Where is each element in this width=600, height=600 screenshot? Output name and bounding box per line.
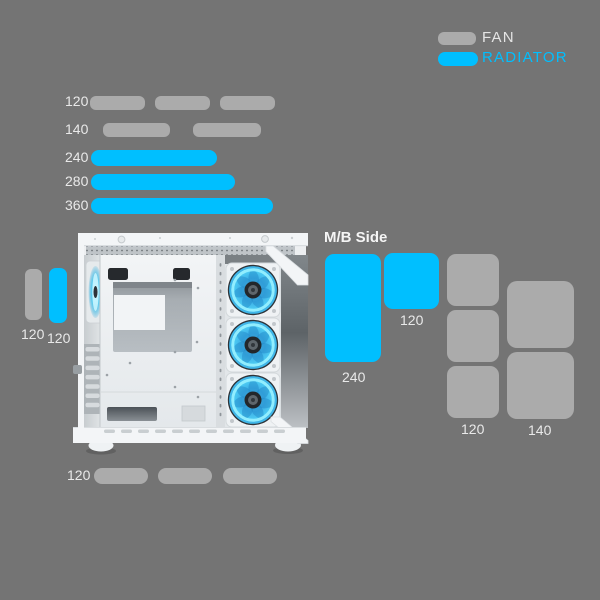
- mb-side-radiator-120-label: 120: [400, 313, 423, 328]
- top-row-280-label: 280: [65, 174, 88, 189]
- top-fan-120-segment-3: [220, 96, 275, 110]
- rear-fan-120-label: 120: [21, 327, 44, 342]
- front-fan-1: [226, 263, 280, 317]
- rear-fan-120-bar: [25, 269, 42, 320]
- top-row-140-label: 140: [65, 122, 88, 137]
- top-row-120-label: 120: [65, 94, 88, 109]
- right-fan-120-segment-2: [447, 310, 499, 362]
- legend-radiator-swatch: [438, 52, 478, 66]
- cable-grommet: [108, 268, 128, 280]
- right-fan-140-segment-2: [507, 352, 574, 419]
- right-fan-140-segment-1: [507, 281, 574, 348]
- bottom-fan-120-segment-1: [94, 468, 148, 484]
- top-radiator-360-bar: [91, 198, 273, 214]
- top-row-240-label: 240: [65, 150, 88, 165]
- psu-box: [182, 406, 205, 421]
- motherboard-tray: [100, 255, 216, 428]
- bottom-fan-120-segment-2: [158, 468, 212, 484]
- bottom-frame: [73, 427, 306, 443]
- fan-radiator-compatibility-diagram: FAN RADIATOR 120 140 240 280 360 120 120…: [0, 0, 600, 600]
- mb-side-title: M/B Side: [324, 230, 387, 246]
- top-vent-strip: [86, 246, 295, 255]
- top-fan-120-segment-1: [90, 96, 145, 110]
- rear-radiator-120-label: 120: [47, 331, 70, 346]
- power-button-stub: [73, 365, 82, 374]
- pci-slot-covers: [84, 344, 101, 414]
- top-row-360-label: 360: [65, 198, 88, 213]
- top-fan-140-segment-2: [193, 123, 261, 137]
- top-radiator-240-bar: [91, 150, 217, 166]
- cable-grommet: [173, 268, 190, 280]
- cpu-cutout: [113, 282, 192, 352]
- psu-opening: [107, 407, 157, 421]
- bottom-fan-120-label: 120: [67, 468, 90, 483]
- rear-outer-edge: [78, 233, 84, 443]
- legend-radiator-label: RADIATOR: [482, 50, 568, 66]
- cable-bar: [216, 255, 225, 428]
- bottom-fan-120-segment-3: [223, 468, 277, 484]
- right-fan-120-segment-3: [447, 366, 499, 418]
- top-fan-140-segment-1: [103, 123, 170, 137]
- right-fan-120-label: 120: [461, 422, 484, 437]
- top-radiator-280-bar: [91, 174, 235, 190]
- mb-side-radiator-120-bar: [384, 253, 439, 309]
- rear-radiator-120-bar: [49, 268, 67, 323]
- mb-side-radiator-240-bar: [325, 254, 381, 362]
- legend-fan-label: FAN: [482, 30, 515, 46]
- right-fan-140-label: 140: [528, 423, 551, 438]
- legend-fan-swatch: [438, 32, 476, 45]
- right-fan-120-segment-1: [447, 254, 499, 306]
- pc-case-illustration: [70, 226, 315, 461]
- top-panel: [78, 233, 308, 246]
- front-fan-2: [226, 318, 280, 372]
- top-fan-120-segment-2: [155, 96, 210, 110]
- mb-side-radiator-240-label: 240: [342, 370, 365, 385]
